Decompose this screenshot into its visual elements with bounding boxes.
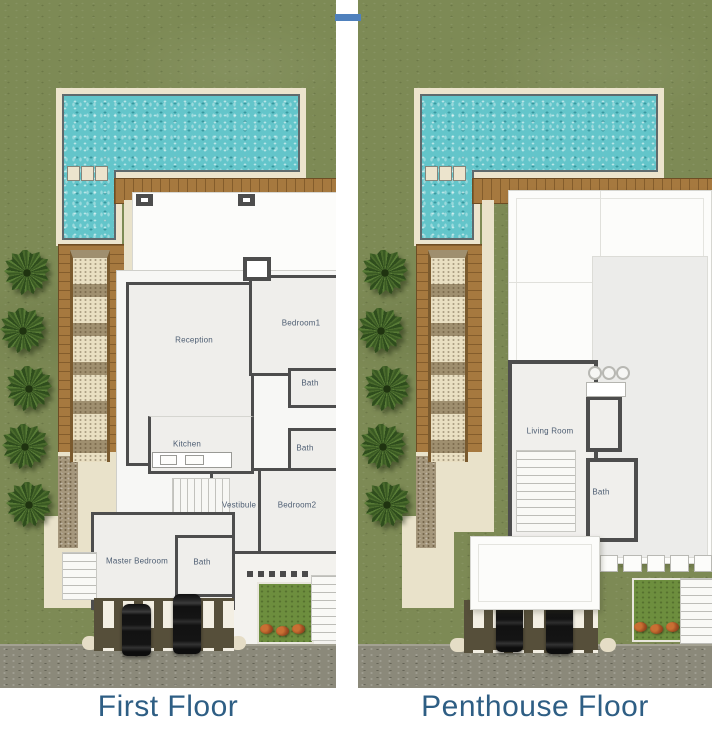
room-label-bedroom1: Bedroom1 [282,319,321,328]
room-label-living-room: Living Room [527,427,574,436]
room-label-vestibule: Vestibule [222,501,256,510]
floorplan-comparison: ReceptionBedroom1BathBathKitchenVestibul… [0,0,712,733]
room-label-master-bedroom: Master Bedroom [106,557,168,566]
room-label-bedroom2: Bedroom2 [278,501,317,510]
penthouse-floor-plan: Living RoomBath [358,0,712,688]
room-label-kitchen: Kitchen [173,440,201,449]
room-labels: Living RoomBath [358,0,712,688]
room-label-reception: Reception [175,336,213,345]
room-labels: ReceptionBedroom1BathBathKitchenVestibul… [0,0,336,688]
first-floor-plan: ReceptionBedroom1BathBathKitchenVestibul… [0,0,336,688]
room-label-bath: Bath [193,558,210,567]
first-floor-caption: First Floor [0,684,336,730]
penthouse-floor-caption: Penthouse Floor [358,684,712,730]
room-label-bath: Bath [301,379,318,388]
room-label-bath: Bath [592,488,609,497]
divider-accent-bar [335,14,361,21]
room-label-bath: Bath [296,444,313,453]
